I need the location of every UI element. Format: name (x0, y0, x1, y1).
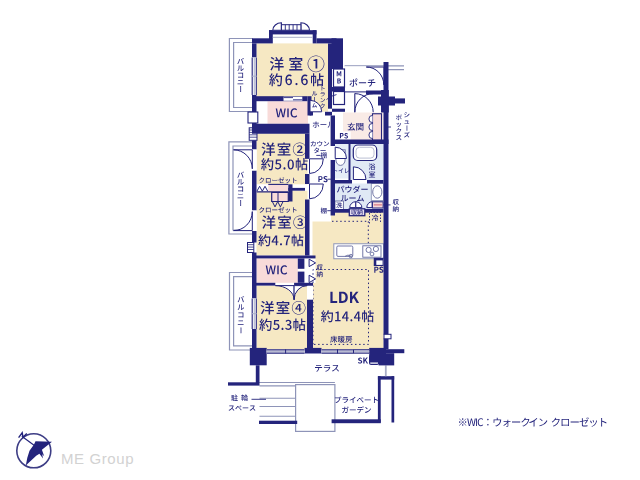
svg-text:ME Group: ME Group (61, 450, 134, 467)
